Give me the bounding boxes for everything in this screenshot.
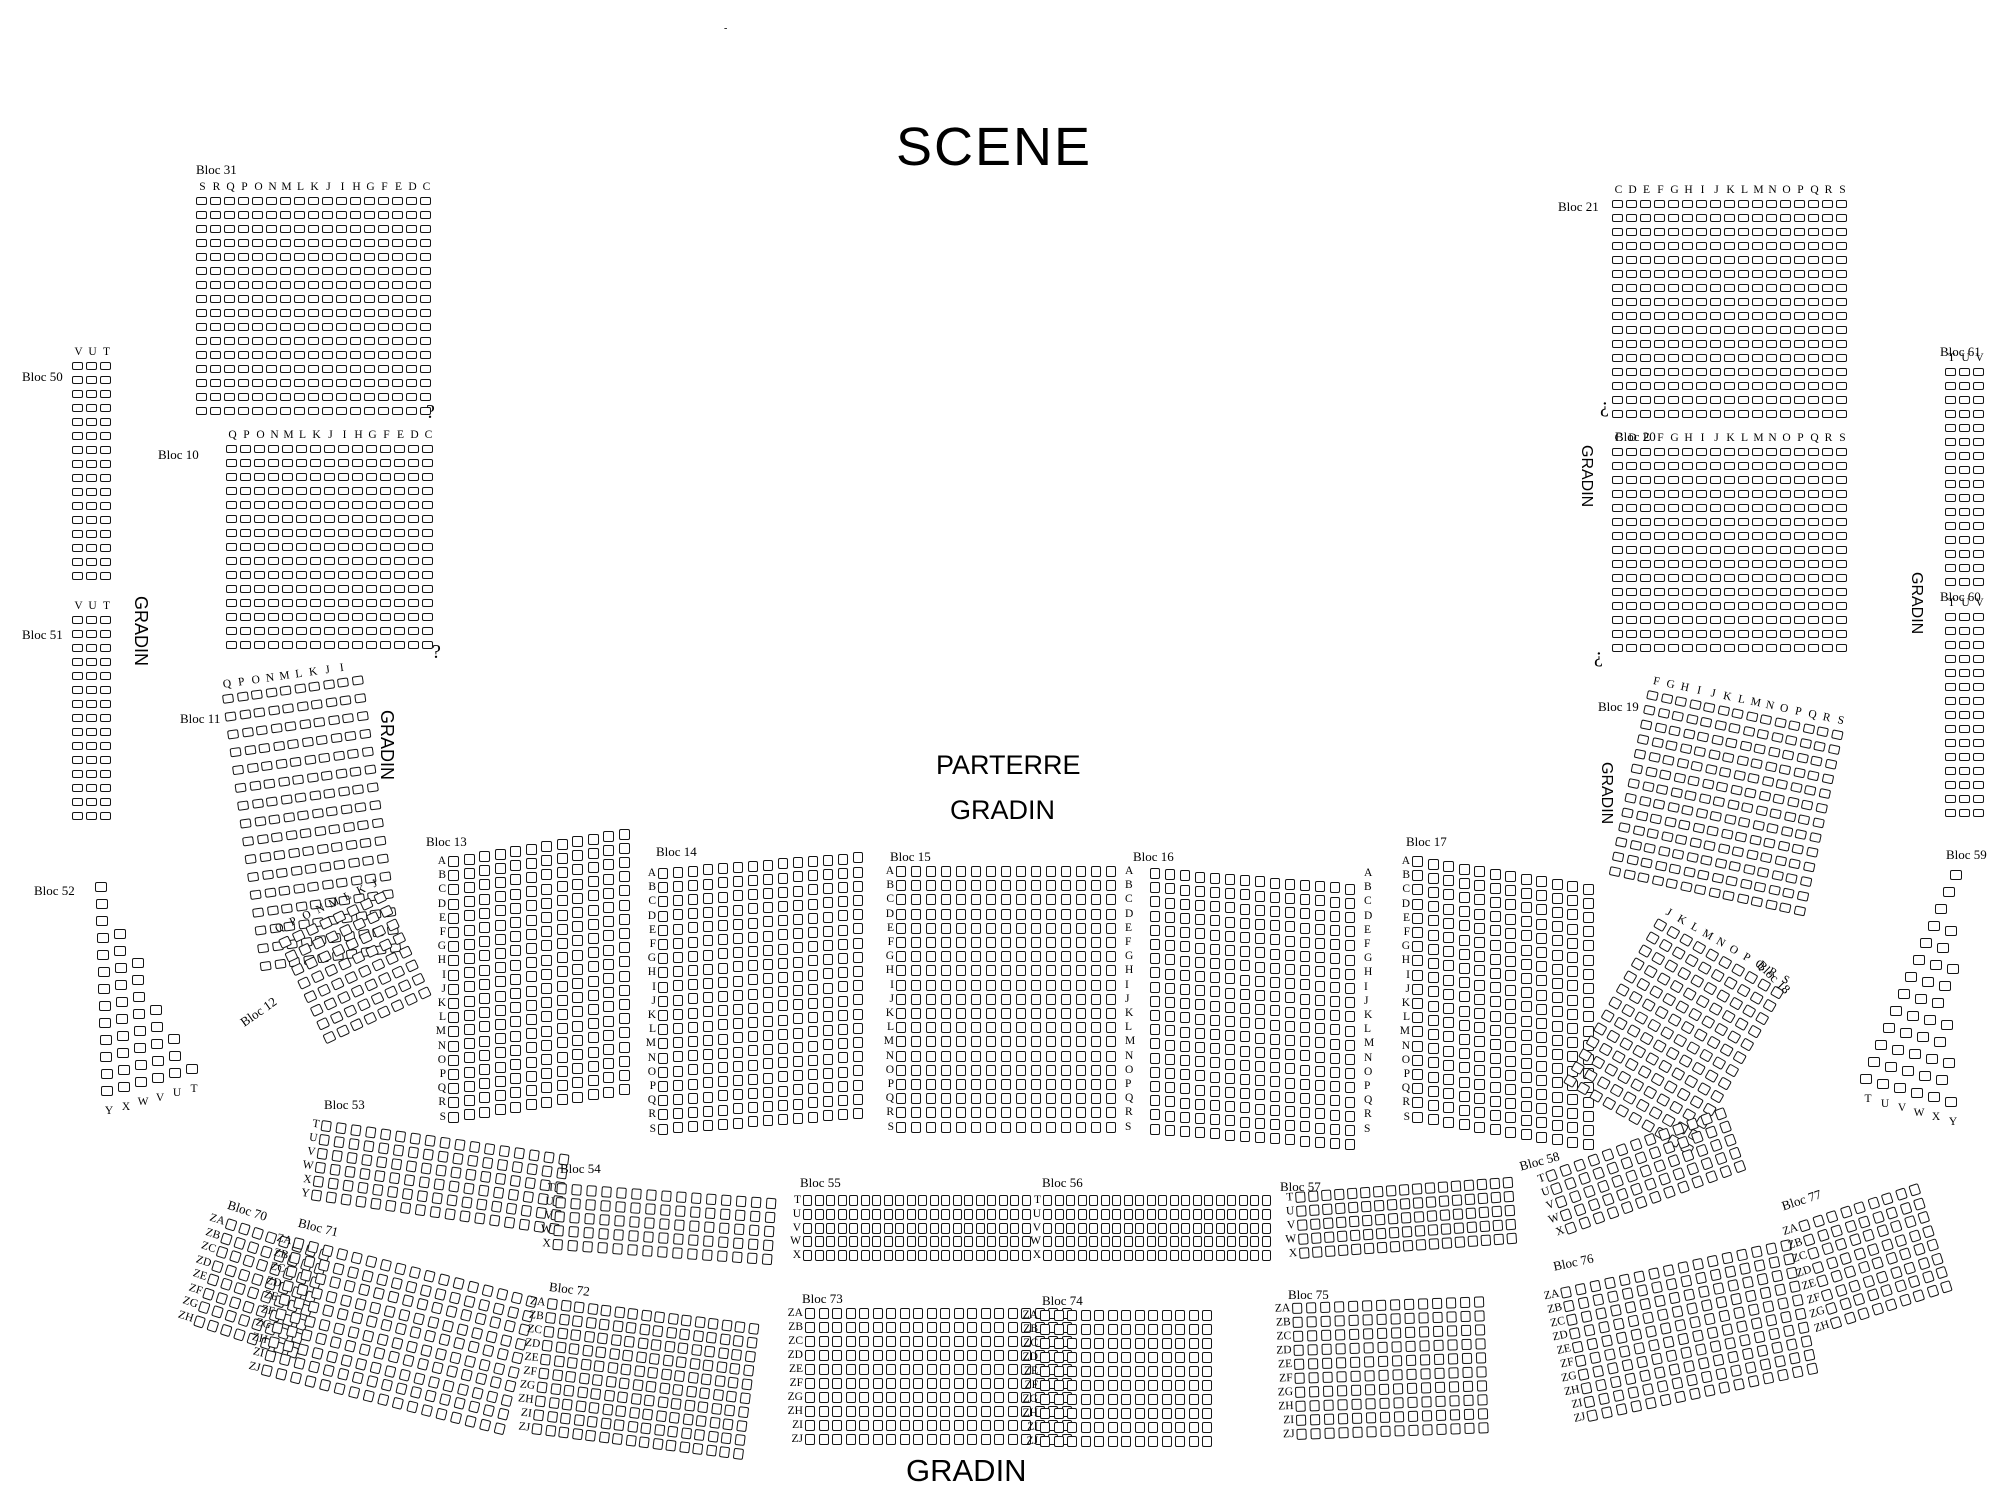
seat[interactable] — [1076, 951, 1086, 962]
seat[interactable] — [266, 407, 277, 415]
seat[interactable] — [954, 1350, 964, 1361]
seat[interactable] — [805, 1378, 815, 1389]
seat[interactable] — [1630, 1138, 1643, 1152]
seat[interactable] — [479, 993, 490, 1004]
seat[interactable] — [733, 1103, 743, 1114]
seat[interactable] — [394, 571, 405, 579]
seat[interactable] — [941, 923, 951, 934]
seat[interactable] — [100, 714, 111, 722]
seat[interactable] — [733, 1118, 743, 1129]
seat[interactable] — [240, 543, 251, 551]
seat[interactable] — [986, 1051, 996, 1062]
seat[interactable] — [1330, 1053, 1340, 1064]
seat[interactable] — [670, 1398, 681, 1410]
seat[interactable] — [1813, 741, 1826, 752]
seat[interactable] — [479, 1418, 491, 1431]
seat[interactable] — [886, 1364, 896, 1375]
seat[interactable] — [1919, 1071, 1931, 1081]
seat[interactable] — [673, 980, 683, 991]
seat[interactable] — [688, 922, 698, 933]
seat[interactable] — [1808, 340, 1819, 348]
seat[interactable] — [233, 1236, 246, 1250]
seat[interactable] — [238, 267, 249, 275]
seat[interactable] — [1250, 1223, 1259, 1234]
seat[interactable] — [1443, 1017, 1454, 1028]
seat[interactable] — [114, 929, 126, 939]
seat[interactable] — [1689, 699, 1702, 710]
seat[interactable] — [1696, 588, 1707, 596]
seat[interactable] — [342, 713, 354, 723]
seat[interactable] — [1463, 1381, 1473, 1392]
seat[interactable] — [1612, 382, 1623, 390]
seat[interactable] — [1046, 1107, 1056, 1118]
seat[interactable] — [900, 1406, 910, 1417]
seat[interactable] — [1413, 1197, 1424, 1209]
seat[interactable] — [1808, 368, 1819, 376]
seat[interactable] — [1552, 893, 1563, 904]
seat[interactable] — [560, 1300, 571, 1312]
seat[interactable] — [793, 1056, 803, 1067]
seat[interactable] — [1668, 410, 1679, 418]
seat[interactable] — [510, 903, 521, 914]
seat[interactable] — [445, 1305, 457, 1318]
seat[interactable] — [366, 473, 377, 481]
seat[interactable] — [926, 1093, 936, 1104]
seat[interactable] — [453, 1337, 465, 1350]
seat[interactable] — [1723, 976, 1738, 990]
seat[interactable] — [304, 755, 316, 765]
seat[interactable] — [778, 1086, 788, 1097]
seat[interactable] — [1794, 312, 1805, 320]
seat[interactable] — [310, 515, 321, 523]
seat[interactable] — [1474, 923, 1485, 934]
seat[interactable] — [406, 239, 417, 247]
seat[interactable] — [1210, 887, 1220, 898]
seat[interactable] — [1262, 1236, 1271, 1247]
seat[interactable] — [1719, 1043, 1734, 1057]
seat[interactable] — [1703, 981, 1718, 995]
seat[interactable] — [333, 1322, 345, 1335]
seat[interactable] — [1691, 1130, 1704, 1144]
seat[interactable] — [350, 295, 361, 303]
seat[interactable] — [378, 407, 389, 415]
seat[interactable] — [464, 868, 475, 879]
seat[interactable] — [1046, 1008, 1056, 1019]
seat[interactable] — [392, 309, 403, 317]
seat[interactable] — [1766, 476, 1777, 484]
seat[interactable] — [1724, 504, 1735, 512]
seat[interactable] — [1703, 840, 1716, 851]
seat[interactable] — [1959, 753, 1970, 761]
seat[interactable] — [1755, 805, 1768, 816]
seat[interactable] — [746, 1337, 757, 1349]
seat[interactable] — [1634, 1011, 1649, 1025]
seat[interactable] — [1682, 476, 1693, 484]
seat[interactable] — [838, 1038, 848, 1049]
seat[interactable] — [254, 816, 266, 826]
seat[interactable] — [971, 1107, 981, 1118]
seat[interactable] — [778, 887, 788, 898]
seat[interactable] — [100, 390, 111, 398]
seat[interactable] — [1973, 641, 1984, 649]
seat[interactable] — [793, 942, 803, 953]
seat[interactable] — [629, 1216, 640, 1228]
seat[interactable] — [1043, 1250, 1052, 1261]
seat[interactable] — [134, 1026, 146, 1036]
seat[interactable] — [1210, 986, 1220, 997]
seat[interactable] — [1930, 960, 1942, 970]
seat[interactable] — [1150, 896, 1160, 907]
seat[interactable] — [471, 1326, 483, 1339]
seat[interactable] — [1061, 880, 1071, 891]
seat[interactable] — [718, 1062, 728, 1073]
seat[interactable] — [1405, 1327, 1415, 1338]
seat[interactable] — [1738, 630, 1749, 638]
seat[interactable] — [1623, 869, 1636, 880]
seat[interactable] — [673, 1080, 683, 1091]
seat[interactable] — [1076, 894, 1086, 905]
seat[interactable] — [460, 1369, 472, 1382]
seat[interactable] — [1330, 882, 1340, 893]
seat[interactable] — [1769, 808, 1782, 819]
seat[interactable] — [1414, 1211, 1425, 1223]
seat[interactable] — [1300, 965, 1310, 976]
seat[interactable] — [572, 1428, 583, 1440]
seat[interactable] — [557, 839, 568, 850]
seat[interactable] — [630, 1393, 641, 1405]
seat[interactable] — [688, 866, 698, 877]
seat[interactable] — [1604, 1348, 1616, 1361]
seat[interactable] — [588, 1047, 599, 1058]
seat[interactable] — [1193, 1236, 1202, 1247]
seat[interactable] — [207, 1273, 220, 1287]
seat[interactable] — [210, 281, 221, 289]
seat[interactable] — [1061, 923, 1071, 934]
seat[interactable] — [1682, 987, 1697, 1001]
seat[interactable] — [525, 1177, 536, 1189]
seat[interactable] — [803, 1209, 812, 1220]
seat[interactable] — [117, 1031, 129, 1041]
seat[interactable] — [1583, 926, 1594, 937]
seat[interactable] — [238, 281, 249, 289]
seat[interactable] — [1640, 214, 1651, 222]
seat[interactable] — [366, 627, 377, 635]
seat[interactable] — [1150, 1038, 1160, 1049]
seat[interactable] — [557, 1327, 568, 1339]
seat[interactable] — [733, 1018, 743, 1029]
seat[interactable] — [1836, 340, 1847, 348]
seat[interactable] — [1716, 781, 1729, 792]
seat[interactable] — [270, 723, 282, 733]
seat[interactable] — [940, 1406, 950, 1417]
seat[interactable] — [1682, 490, 1693, 498]
seat[interactable] — [1694, 884, 1707, 895]
seat[interactable] — [1365, 1398, 1375, 1409]
seat[interactable] — [913, 1378, 923, 1389]
seat[interactable] — [778, 873, 788, 884]
seat[interactable] — [504, 1216, 515, 1228]
seat[interactable] — [1345, 1068, 1355, 1079]
seat[interactable] — [941, 1022, 951, 1033]
seat[interactable] — [1306, 1302, 1316, 1313]
seat[interactable] — [1010, 1209, 1019, 1220]
seat[interactable] — [224, 225, 235, 233]
seat[interactable] — [1108, 1436, 1118, 1447]
seat[interactable] — [288, 848, 300, 858]
seat[interactable] — [1345, 1139, 1355, 1150]
seat[interactable] — [1108, 1408, 1118, 1419]
seat[interactable] — [1165, 1082, 1175, 1093]
seat[interactable] — [1459, 991, 1470, 1002]
seat[interactable] — [1162, 1394, 1172, 1405]
seat[interactable] — [1738, 228, 1749, 236]
seat[interactable] — [1836, 214, 1847, 222]
seat[interactable] — [1433, 1340, 1443, 1351]
seat[interactable] — [667, 1313, 678, 1325]
seat[interactable] — [355, 1297, 367, 1310]
seat[interactable] — [1466, 1207, 1477, 1219]
seat[interactable] — [322, 1364, 334, 1377]
seat[interactable] — [336, 1024, 350, 1038]
seat[interactable] — [1450, 1423, 1460, 1434]
seat[interactable] — [1195, 971, 1205, 982]
seat[interactable] — [722, 1418, 733, 1430]
seat[interactable] — [1640, 382, 1651, 390]
seat[interactable] — [1626, 214, 1637, 222]
seat[interactable] — [1793, 767, 1806, 778]
seat[interactable] — [526, 1042, 537, 1053]
seat[interactable] — [1766, 518, 1777, 526]
seat[interactable] — [1668, 368, 1679, 376]
seat[interactable] — [405, 1280, 417, 1293]
seat[interactable] — [1462, 1353, 1472, 1364]
seat[interactable] — [468, 1340, 480, 1353]
seat[interactable] — [1780, 574, 1791, 582]
seat[interactable] — [1700, 717, 1713, 728]
seat[interactable] — [1380, 1412, 1390, 1423]
seat[interactable] — [1521, 916, 1532, 927]
seat[interactable] — [1521, 945, 1532, 956]
seat[interactable] — [310, 571, 321, 579]
seat[interactable] — [999, 1209, 1008, 1220]
seat[interactable] — [1836, 616, 1847, 624]
seat[interactable] — [510, 1087, 521, 1098]
seat[interactable] — [1101, 1209, 1110, 1220]
seat[interactable] — [1270, 1034, 1280, 1045]
seat[interactable] — [1668, 326, 1679, 334]
seat[interactable] — [72, 756, 83, 764]
seat[interactable] — [1724, 532, 1735, 540]
seat[interactable] — [308, 379, 319, 387]
seat[interactable] — [431, 1301, 443, 1314]
seat[interactable] — [676, 1356, 687, 1368]
seat[interactable] — [380, 557, 391, 565]
seat[interactable] — [449, 1291, 461, 1304]
seat[interactable] — [335, 768, 347, 778]
seat[interactable] — [1665, 1046, 1680, 1060]
seat[interactable] — [1240, 1031, 1250, 1042]
seat[interactable] — [392, 407, 403, 415]
seat[interactable] — [823, 983, 833, 994]
seat[interactable] — [254, 627, 265, 635]
seat[interactable] — [1459, 864, 1470, 875]
seat[interactable] — [100, 700, 111, 708]
seat[interactable] — [210, 337, 221, 345]
seat[interactable] — [1345, 1026, 1355, 1037]
seat[interactable] — [424, 1135, 435, 1147]
seat[interactable] — [343, 822, 355, 832]
seat[interactable] — [1766, 242, 1777, 250]
seat[interactable] — [1640, 242, 1651, 250]
seat[interactable] — [1001, 937, 1011, 948]
seat[interactable] — [1626, 504, 1637, 512]
seat[interactable] — [1827, 744, 1840, 755]
seat[interactable] — [350, 323, 361, 331]
seat[interactable] — [1666, 1278, 1678, 1291]
seat[interactable] — [1945, 494, 1956, 502]
seat[interactable] — [1335, 1329, 1345, 1340]
seat[interactable] — [654, 1311, 665, 1323]
seat[interactable] — [1479, 1207, 1490, 1219]
seat[interactable] — [1710, 200, 1721, 208]
seat[interactable] — [392, 239, 403, 247]
seat[interactable] — [823, 1054, 833, 1065]
seat[interactable] — [640, 1310, 651, 1322]
seat[interactable] — [1490, 996, 1501, 1007]
seat[interactable] — [1609, 866, 1622, 877]
seat[interactable] — [301, 737, 313, 747]
seat[interactable] — [1240, 918, 1250, 929]
seat[interactable] — [1738, 242, 1749, 250]
seat[interactable] — [1091, 1051, 1101, 1062]
seat[interactable] — [408, 557, 419, 565]
seat[interactable] — [395, 1130, 406, 1142]
seat[interactable] — [846, 1350, 856, 1361]
seat[interactable] — [1536, 1103, 1547, 1114]
seat[interactable] — [1791, 844, 1804, 855]
seat[interactable] — [337, 677, 349, 687]
seat[interactable] — [886, 1322, 896, 1333]
seat[interactable] — [1654, 298, 1665, 306]
seat[interactable] — [1677, 1261, 1689, 1274]
seat[interactable] — [322, 379, 333, 387]
seat[interactable] — [1240, 1017, 1250, 1028]
seat[interactable] — [645, 1381, 656, 1393]
seat[interactable] — [1945, 578, 1956, 586]
seat[interactable] — [357, 1182, 368, 1194]
seat[interactable] — [1794, 504, 1805, 512]
seat[interactable] — [350, 281, 361, 289]
seat[interactable] — [1225, 1115, 1235, 1126]
seat[interactable] — [292, 1237, 304, 1250]
seat[interactable] — [1656, 972, 1671, 986]
seat[interactable] — [673, 867, 683, 878]
seat[interactable] — [673, 1108, 683, 1119]
seat[interactable] — [688, 993, 698, 1004]
seat[interactable] — [1710, 410, 1721, 418]
seat[interactable] — [1945, 396, 1956, 404]
seat[interactable] — [1180, 1098, 1190, 1109]
seat[interactable] — [394, 613, 405, 621]
seat[interactable] — [361, 1154, 372, 1166]
seat[interactable] — [853, 1065, 863, 1076]
seat[interactable] — [1808, 298, 1819, 306]
seat[interactable] — [1010, 1236, 1019, 1247]
seat[interactable] — [365, 1255, 377, 1268]
seat[interactable] — [1973, 494, 1984, 502]
seat[interactable] — [1490, 1124, 1501, 1135]
seat[interactable] — [366, 782, 378, 792]
seat[interactable] — [1452, 1194, 1463, 1206]
seat[interactable] — [1412, 1069, 1423, 1080]
seat[interactable] — [1407, 1383, 1417, 1394]
seat[interactable] — [573, 1301, 584, 1313]
seat[interactable] — [541, 855, 552, 866]
seat[interactable] — [252, 267, 263, 275]
seat[interactable] — [1315, 966, 1325, 977]
seat[interactable] — [941, 1250, 950, 1261]
seat[interactable] — [572, 1021, 583, 1032]
seat[interactable] — [371, 958, 385, 972]
seat[interactable] — [588, 1089, 599, 1100]
seat[interactable] — [861, 1250, 870, 1261]
seat[interactable] — [1945, 1097, 1957, 1107]
seat[interactable] — [72, 798, 83, 806]
seat[interactable] — [1240, 889, 1250, 900]
seat[interactable] — [1195, 900, 1205, 911]
seat[interactable] — [971, 1022, 981, 1033]
seat[interactable] — [240, 487, 251, 495]
seat[interactable] — [859, 1322, 869, 1333]
seat[interactable] — [1239, 1195, 1248, 1206]
seat[interactable] — [1752, 410, 1763, 418]
seat[interactable] — [1675, 834, 1688, 845]
seat[interactable] — [603, 959, 614, 970]
seat[interactable] — [1521, 987, 1532, 998]
seat[interactable] — [350, 197, 361, 205]
seat[interactable] — [332, 1262, 344, 1275]
seat[interactable] — [72, 390, 83, 398]
seat[interactable] — [911, 1065, 921, 1076]
seat[interactable] — [1419, 1326, 1429, 1337]
seat[interactable] — [526, 858, 537, 869]
seat[interactable] — [495, 1033, 506, 1044]
seat[interactable] — [572, 893, 583, 904]
seat[interactable] — [1448, 1367, 1458, 1378]
seat[interactable] — [838, 996, 848, 1007]
seat[interactable] — [545, 1425, 556, 1437]
seat[interactable] — [582, 1241, 593, 1253]
seat[interactable] — [282, 473, 293, 481]
seat[interactable] — [1626, 490, 1637, 498]
seat[interactable] — [420, 337, 431, 345]
seat[interactable] — [468, 1400, 480, 1413]
seat[interactable] — [1742, 1276, 1754, 1289]
seat[interactable] — [322, 323, 333, 331]
seat[interactable] — [1700, 1157, 1713, 1171]
seat[interactable] — [1165, 926, 1175, 937]
seat[interactable] — [464, 967, 475, 978]
seat[interactable] — [1204, 1250, 1213, 1261]
seat[interactable] — [508, 1189, 519, 1201]
seat[interactable] — [400, 1202, 411, 1214]
seat[interactable] — [1311, 1232, 1322, 1244]
seat[interactable] — [1121, 1422, 1131, 1433]
seat[interactable] — [1552, 1035, 1563, 1046]
seat[interactable] — [411, 973, 425, 987]
seat[interactable] — [1808, 448, 1819, 456]
seat[interactable] — [763, 1016, 773, 1027]
